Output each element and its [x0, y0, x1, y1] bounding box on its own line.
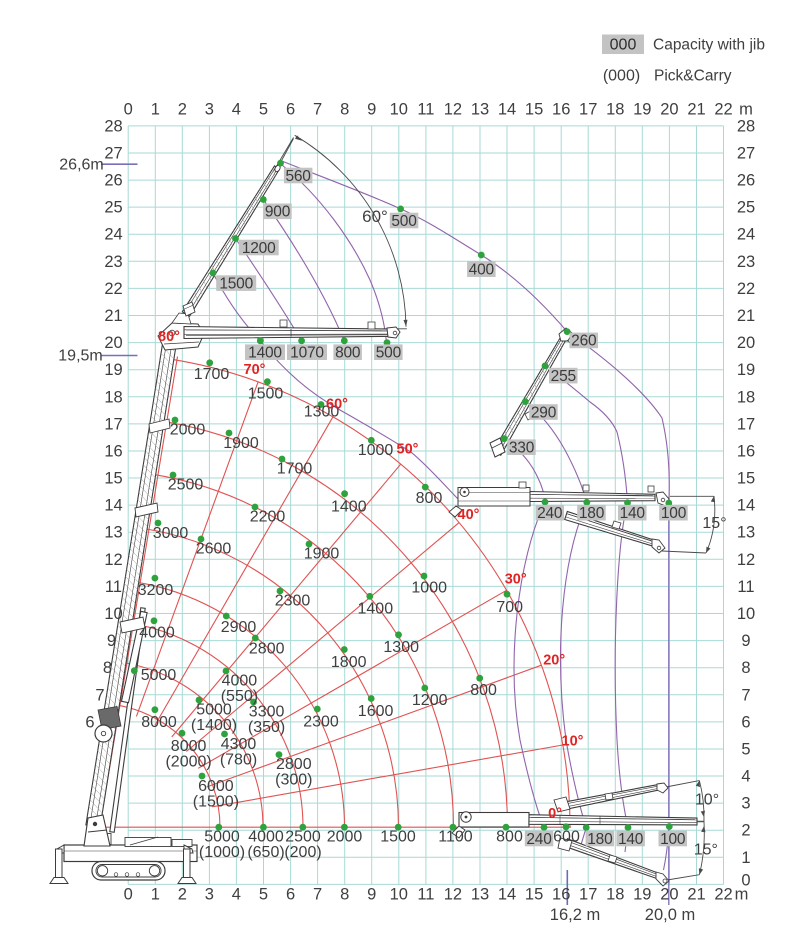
- svg-text:800: 800: [416, 490, 443, 507]
- svg-text:15: 15: [525, 101, 543, 119]
- svg-text:2300: 2300: [303, 713, 339, 730]
- svg-text:900: 900: [265, 204, 291, 221]
- svg-text:3000: 3000: [153, 525, 189, 542]
- svg-text:255: 255: [551, 368, 576, 385]
- svg-text:1000: 1000: [358, 442, 394, 459]
- svg-text:1: 1: [151, 886, 160, 904]
- svg-text:16,2 m: 16,2 m: [550, 906, 600, 924]
- svg-text:7: 7: [741, 686, 750, 704]
- svg-text:16: 16: [737, 443, 755, 461]
- svg-text:m: m: [739, 101, 753, 119]
- svg-text:15°: 15°: [694, 842, 718, 859]
- svg-text:0: 0: [124, 101, 133, 119]
- svg-text:6: 6: [741, 713, 750, 731]
- svg-text:25: 25: [737, 199, 755, 217]
- svg-text:19,5m: 19,5m: [58, 348, 102, 365]
- svg-text:13: 13: [737, 524, 755, 542]
- svg-text:2800: 2800: [249, 641, 285, 658]
- svg-text:1: 1: [741, 849, 750, 867]
- svg-text:(300): (300): [275, 772, 312, 789]
- svg-text:0: 0: [741, 872, 750, 890]
- svg-text:560: 560: [285, 168, 311, 185]
- svg-text:24: 24: [737, 226, 755, 244]
- svg-text:20,0 m: 20,0 m: [645, 906, 695, 924]
- svg-text:17: 17: [579, 101, 597, 119]
- svg-text:26: 26: [737, 172, 755, 190]
- svg-text:800: 800: [335, 345, 361, 362]
- svg-text:9: 9: [107, 632, 116, 650]
- svg-text:1500: 1500: [219, 275, 253, 292]
- svg-text:10: 10: [390, 886, 408, 904]
- svg-text:2: 2: [178, 886, 187, 904]
- svg-text:6: 6: [286, 101, 295, 119]
- svg-text:3300: 3300: [249, 703, 285, 720]
- svg-text:500: 500: [376, 345, 402, 362]
- svg-text:330: 330: [509, 440, 535, 457]
- svg-text:3: 3: [205, 886, 214, 904]
- svg-text:25: 25: [104, 199, 122, 217]
- svg-text:22: 22: [714, 101, 732, 119]
- svg-text:18: 18: [606, 101, 624, 119]
- svg-text:14: 14: [498, 101, 516, 119]
- svg-text:6000: 6000: [198, 778, 234, 795]
- svg-text:26,6m: 26,6m: [59, 157, 103, 174]
- svg-text:(650): (650): [247, 844, 284, 861]
- svg-text:24: 24: [104, 226, 122, 244]
- svg-text:18: 18: [606, 886, 624, 904]
- svg-text:(2000): (2000): [165, 754, 211, 771]
- svg-text:18: 18: [104, 388, 122, 406]
- svg-text:19: 19: [737, 361, 755, 379]
- svg-text:12: 12: [444, 101, 462, 119]
- svg-text:8000: 8000: [141, 714, 177, 731]
- svg-text:15: 15: [525, 886, 543, 904]
- svg-text:(1400): (1400): [191, 717, 237, 734]
- svg-text:800: 800: [496, 829, 523, 846]
- svg-text:1500: 1500: [248, 386, 284, 403]
- svg-text:4000: 4000: [222, 673, 258, 690]
- svg-text:7: 7: [313, 886, 322, 904]
- svg-text:1: 1: [151, 101, 160, 119]
- svg-text:5: 5: [259, 886, 268, 904]
- svg-text:9: 9: [367, 886, 376, 904]
- svg-text:3: 3: [741, 795, 750, 813]
- svg-text:100: 100: [661, 505, 687, 522]
- svg-text:500: 500: [391, 213, 417, 230]
- svg-text:700: 700: [496, 599, 523, 616]
- svg-text:1200: 1200: [412, 692, 448, 709]
- svg-text:1070: 1070: [290, 345, 324, 362]
- svg-text:4: 4: [232, 886, 241, 904]
- svg-text:12: 12: [737, 551, 755, 569]
- svg-text:21: 21: [687, 101, 705, 119]
- svg-text:2500: 2500: [168, 477, 204, 494]
- svg-text:(1500): (1500): [193, 793, 239, 810]
- svg-text:0: 0: [124, 886, 133, 904]
- svg-text:8000: 8000: [171, 738, 207, 755]
- svg-text:2300: 2300: [275, 593, 311, 610]
- svg-text:2900: 2900: [221, 619, 257, 636]
- svg-text:19: 19: [104, 361, 122, 379]
- svg-text:22: 22: [104, 280, 122, 298]
- svg-text:22: 22: [737, 280, 755, 298]
- svg-text:19: 19: [633, 886, 651, 904]
- svg-text:240: 240: [537, 505, 563, 522]
- svg-text:4000: 4000: [139, 625, 175, 642]
- svg-text:3200: 3200: [138, 582, 174, 599]
- svg-text:2000: 2000: [327, 829, 363, 846]
- svg-text:(350): (350): [248, 719, 285, 736]
- svg-text:17: 17: [737, 415, 755, 433]
- svg-text:28: 28: [737, 117, 755, 135]
- svg-text:2200: 2200: [250, 509, 286, 526]
- svg-text:4300: 4300: [221, 736, 257, 753]
- svg-text:21: 21: [104, 307, 122, 325]
- svg-text:1400: 1400: [248, 345, 282, 362]
- svg-text:2500: 2500: [285, 829, 321, 846]
- svg-text:2: 2: [741, 822, 750, 840]
- svg-text:21: 21: [737, 307, 755, 325]
- svg-text:9: 9: [741, 632, 750, 650]
- svg-text:11: 11: [417, 101, 434, 119]
- svg-text:2600: 2600: [196, 541, 232, 558]
- svg-text:13: 13: [471, 886, 489, 904]
- svg-text:15°: 15°: [702, 515, 726, 532]
- svg-text:60°: 60°: [326, 397, 348, 413]
- svg-text:1900: 1900: [304, 546, 340, 563]
- svg-text:7: 7: [313, 101, 322, 119]
- svg-text:1400: 1400: [331, 499, 367, 516]
- svg-text:100: 100: [660, 831, 686, 848]
- svg-text:16: 16: [552, 101, 570, 119]
- svg-text:Capacity with jib: Capacity with jib: [653, 37, 765, 54]
- svg-text:2: 2: [178, 101, 187, 119]
- svg-text:20: 20: [660, 101, 678, 119]
- svg-text:11: 11: [417, 886, 434, 904]
- svg-text:1700: 1700: [194, 366, 230, 383]
- svg-text:23: 23: [104, 253, 122, 271]
- svg-text:800: 800: [470, 682, 497, 699]
- svg-text:5000: 5000: [141, 667, 177, 684]
- svg-text:1300: 1300: [383, 639, 419, 656]
- svg-text:10°: 10°: [562, 734, 584, 750]
- svg-text:13: 13: [104, 524, 122, 542]
- svg-text:15: 15: [104, 470, 122, 488]
- svg-text:27: 27: [737, 145, 755, 163]
- svg-text:(200): (200): [284, 844, 321, 861]
- svg-text:6: 6: [85, 713, 94, 731]
- svg-text:1800: 1800: [331, 654, 367, 671]
- svg-text:22: 22: [714, 886, 732, 904]
- svg-text:600: 600: [553, 829, 580, 846]
- svg-text:27: 27: [104, 145, 122, 163]
- svg-text:14: 14: [104, 497, 122, 515]
- svg-text:19: 19: [633, 101, 651, 119]
- svg-text:28: 28: [104, 117, 122, 135]
- svg-text:60°: 60°: [362, 207, 388, 226]
- svg-text:5000: 5000: [204, 829, 240, 846]
- svg-text:70°: 70°: [244, 362, 266, 378]
- svg-text:5: 5: [741, 741, 750, 759]
- svg-text:4: 4: [741, 768, 750, 786]
- svg-text:20°: 20°: [543, 653, 565, 669]
- svg-text:8: 8: [103, 659, 112, 677]
- svg-text:140: 140: [618, 831, 644, 848]
- svg-text:1100: 1100: [438, 829, 473, 846]
- svg-text:290: 290: [531, 404, 557, 421]
- svg-text:20: 20: [104, 334, 122, 352]
- svg-text:6: 6: [286, 886, 295, 904]
- svg-text:5: 5: [259, 101, 268, 119]
- svg-text:(780): (780): [220, 752, 257, 769]
- svg-text:8: 8: [340, 886, 349, 904]
- svg-text:400: 400: [469, 262, 495, 279]
- svg-text:12: 12: [104, 551, 122, 569]
- svg-text:40°: 40°: [458, 507, 480, 523]
- svg-text:11: 11: [105, 578, 122, 596]
- svg-text:8: 8: [741, 659, 750, 677]
- svg-text:1900: 1900: [223, 435, 259, 452]
- svg-text:8: 8: [340, 101, 349, 119]
- svg-text:30°: 30°: [505, 572, 527, 588]
- svg-text:17: 17: [579, 886, 597, 904]
- svg-text:Pick&Carry: Pick&Carry: [654, 68, 732, 85]
- svg-text:21: 21: [687, 886, 705, 904]
- svg-text:260: 260: [571, 333, 597, 350]
- svg-text:140: 140: [620, 505, 646, 522]
- svg-text:18: 18: [737, 388, 755, 406]
- svg-text:(000): (000): [603, 68, 640, 85]
- svg-text:0°: 0°: [548, 806, 562, 822]
- svg-text:23: 23: [737, 253, 755, 271]
- svg-text:3: 3: [205, 101, 214, 119]
- svg-text:2800: 2800: [276, 756, 312, 773]
- svg-text:10: 10: [737, 605, 755, 623]
- svg-text:12: 12: [444, 886, 462, 904]
- svg-text:20: 20: [737, 334, 755, 352]
- svg-text:1000: 1000: [411, 580, 447, 597]
- svg-text:80°: 80°: [158, 329, 180, 345]
- svg-text:000: 000: [610, 37, 637, 54]
- svg-text:17: 17: [104, 415, 122, 433]
- svg-text:(1000): (1000): [199, 844, 245, 861]
- svg-text:11: 11: [737, 578, 754, 596]
- svg-text:4000: 4000: [248, 829, 284, 846]
- svg-text:10°: 10°: [695, 792, 719, 809]
- svg-text:15: 15: [737, 470, 755, 488]
- svg-text:26: 26: [104, 172, 122, 190]
- svg-text:4: 4: [232, 101, 241, 119]
- svg-text:14: 14: [737, 497, 755, 515]
- svg-text:9: 9: [367, 101, 376, 119]
- svg-text:16: 16: [552, 886, 570, 904]
- svg-text:1400: 1400: [358, 601, 394, 618]
- svg-text:7: 7: [95, 686, 104, 704]
- svg-text:10: 10: [104, 605, 122, 623]
- svg-text:20: 20: [660, 886, 678, 904]
- svg-text:13: 13: [471, 101, 489, 119]
- svg-text:50°: 50°: [397, 442, 419, 458]
- svg-text:1600: 1600: [358, 703, 394, 720]
- svg-text:14: 14: [498, 886, 516, 904]
- svg-text:16: 16: [104, 443, 122, 461]
- svg-text:180: 180: [579, 505, 605, 522]
- svg-text:180: 180: [587, 831, 613, 848]
- svg-text:2000: 2000: [170, 422, 206, 439]
- svg-text:1200: 1200: [242, 240, 276, 257]
- svg-text:240: 240: [526, 831, 552, 848]
- svg-text:10: 10: [390, 101, 408, 119]
- svg-text:1500: 1500: [380, 829, 416, 846]
- svg-text:1700: 1700: [277, 461, 313, 478]
